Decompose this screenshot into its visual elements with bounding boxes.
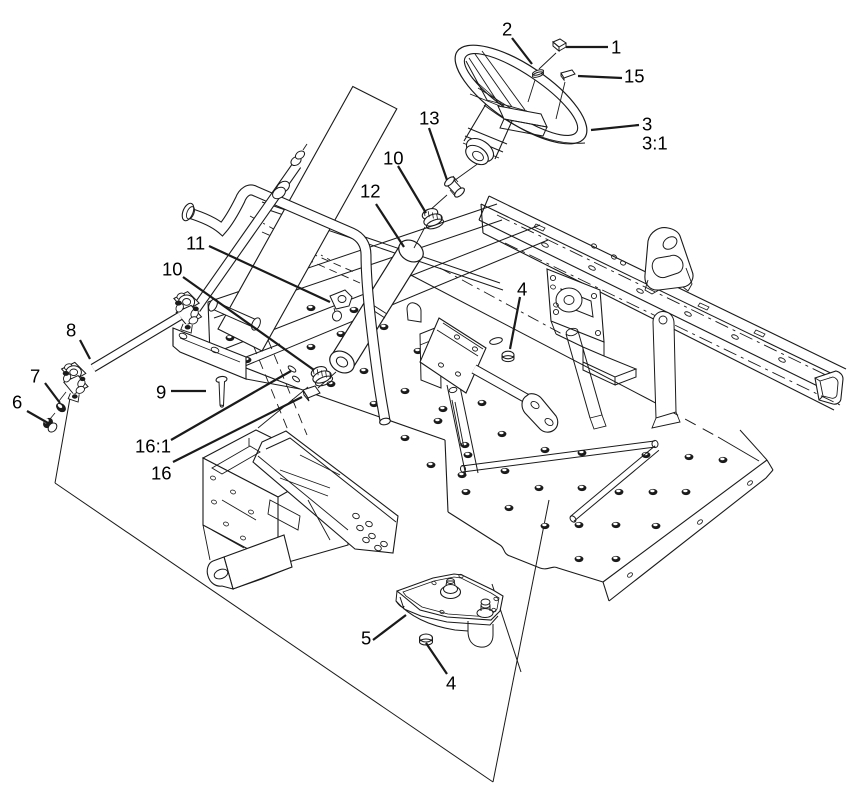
svg-text:3:1: 3:1 [642, 133, 668, 154]
svg-text:3: 3 [642, 114, 652, 135]
svg-text:13: 13 [419, 108, 440, 129]
svg-text:16:1: 16:1 [135, 436, 171, 457]
svg-text:4: 4 [446, 673, 456, 694]
svg-text:16: 16 [151, 463, 172, 484]
svg-text:10: 10 [383, 148, 404, 169]
svg-text:5: 5 [361, 628, 371, 649]
svg-text:4: 4 [517, 279, 527, 300]
svg-text:2: 2 [502, 19, 512, 40]
svg-text:12: 12 [360, 181, 381, 202]
svg-text:6: 6 [12, 392, 22, 413]
svg-text:1: 1 [611, 37, 621, 58]
svg-text:10: 10 [162, 259, 183, 280]
svg-text:7: 7 [30, 366, 40, 387]
svg-text:8: 8 [66, 320, 76, 341]
svg-text:11: 11 [186, 233, 205, 254]
svg-text:15: 15 [624, 66, 645, 87]
svg-text:9: 9 [156, 382, 166, 403]
